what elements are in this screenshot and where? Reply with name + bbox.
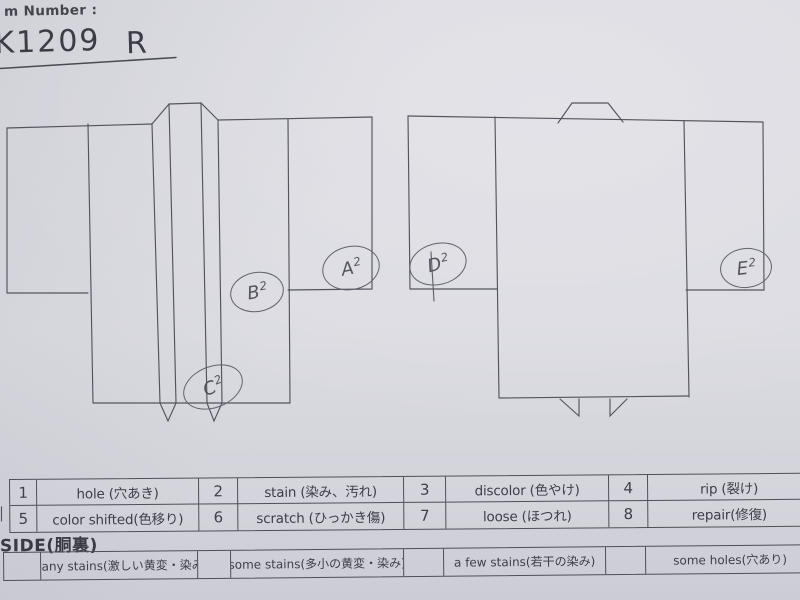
item-number-value: K1209 (0, 23, 101, 61)
legend-num-6: 6 (199, 504, 238, 530)
inside-checkbox-cell-3 (404, 549, 444, 576)
legend-label-rip: rip (裂け) (648, 474, 800, 501)
item-number-revision: R (126, 26, 148, 62)
legend-num-2: 2 (199, 478, 238, 504)
back-collar-tips (560, 399, 627, 416)
annotation-a2-digit: 2 (352, 254, 362, 269)
front-left-collar-band (152, 104, 176, 421)
legend-label-hole: hole (穴あき) (37, 479, 199, 506)
inside-option-a-few-stains: a few stains(若干の染み) (444, 547, 606, 576)
item-number-label: m Number : (4, 2, 98, 20)
inside-option-many-stains: many stains(激しい黄変・染み) (41, 551, 198, 580)
front-left-sleeve (7, 128, 88, 293)
inside-checkbox-cell-2 (198, 551, 231, 578)
legend-label-repair: repair(修復) (648, 500, 800, 527)
back-left-seam (495, 117, 499, 398)
legend-label-discolor: discolor (色やけ) (446, 475, 609, 502)
legend-label-scratch: scratch (ひっかき傷) (238, 503, 404, 530)
inside-option-some-stains: some stains(多小の黄変・染み) (231, 549, 404, 578)
legend-label-stain: stain (染み、汚れ) (238, 477, 404, 504)
legend-num-7: 7 (404, 503, 446, 529)
inspection-sheet: m Number : K1209 R A2 B2 C2 D2 E2 1 hole… (0, 0, 800, 600)
back-right-seam (684, 121, 689, 397)
legend-num-5: 5 (10, 506, 37, 532)
annotation-b2-digit: 2 (258, 278, 268, 293)
front-right-seam (288, 119, 290, 403)
annotation-e2-letter: E (736, 257, 750, 279)
legend-num-8: 8 (609, 501, 648, 527)
legend-num-4: 4 (609, 475, 648, 501)
back-hem (499, 396, 689, 398)
legend-label-color-shifted: color shifted(色移り) (37, 505, 199, 532)
back-shoulder (408, 116, 763, 122)
kimono-front-diagram (7, 103, 372, 421)
annotation-e2-digit: 2 (748, 255, 757, 270)
front-shoulders (7, 117, 372, 128)
legend-label-loose: loose (ほつれ) (446, 501, 609, 528)
front-collar (152, 103, 218, 124)
inside-checkbox-cell-1 (4, 553, 41, 580)
legend-num-1: 1 (10, 480, 37, 506)
inside-option-some-holes: some holes(穴あり) (646, 545, 800, 574)
legend-num-3: 3 (404, 477, 446, 503)
inside-checkbox-cell-4 (606, 547, 646, 574)
defect-legend-table: 1 hole (穴あき) 2 stain (染み、汚れ) 3 discolor … (9, 473, 800, 533)
front-left-seam (88, 124, 93, 403)
